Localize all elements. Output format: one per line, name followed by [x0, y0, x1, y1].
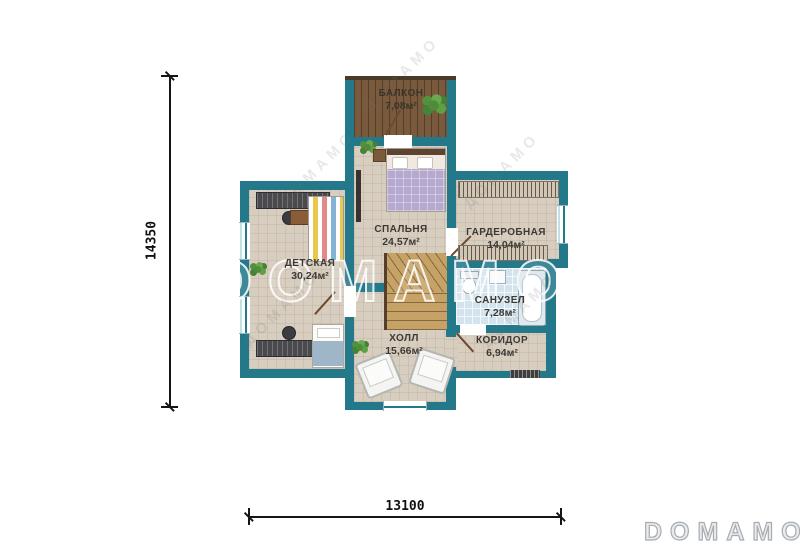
horizontal-dimension-line [249, 516, 562, 518]
room-label-kids: ДЕТСКАЯ 30,24м² [268, 258, 352, 283]
bed-pillow-right [417, 157, 433, 169]
corridor-radiator [510, 370, 540, 378]
tv-panel [356, 170, 361, 222]
room-label-balcony: БАЛКОН 7,08м² [357, 88, 445, 113]
room-label-hall: ХОЛЛ 15,66м² [368, 333, 440, 358]
room-label-bedroom: СПАЛЬНЯ 24,57м² [360, 224, 442, 249]
bathroom-door-opening [460, 324, 486, 335]
hall-window [383, 401, 427, 411]
room-label-wardrobe: ГАРДЕРОБНАЯ 14,04м² [453, 227, 559, 252]
kids-dresser [290, 210, 310, 225]
bed-blanket [387, 169, 445, 211]
kids-small-bed-blanket [313, 341, 343, 366]
bed-pillow-left [392, 157, 408, 169]
bedroom-nightstand [373, 149, 386, 162]
kids-small-bed [312, 324, 344, 368]
vertical-dimension-line [169, 76, 171, 407]
kids-small-bed-pillow [317, 328, 340, 338]
vertical-dimension-value: 14350 [145, 209, 160, 273]
master-bed [386, 148, 446, 212]
balcony-door-opening [384, 135, 412, 148]
bed-headboard [387, 149, 445, 155]
floor-plan-canvas: 14350 13100 [0, 0, 800, 557]
hall-plant [356, 344, 363, 351]
room-label-bathroom: САНУЗЕЛ 7,28м² [456, 295, 544, 320]
domamo-logo: DOMAMO [644, 518, 800, 547]
room-label-corridor: КОРИДОР 6,94м² [462, 335, 542, 360]
horizontal-dimension-value: 13100 [360, 499, 450, 514]
bedroom-plant [364, 144, 371, 151]
kids-chair-bottom [282, 326, 296, 340]
